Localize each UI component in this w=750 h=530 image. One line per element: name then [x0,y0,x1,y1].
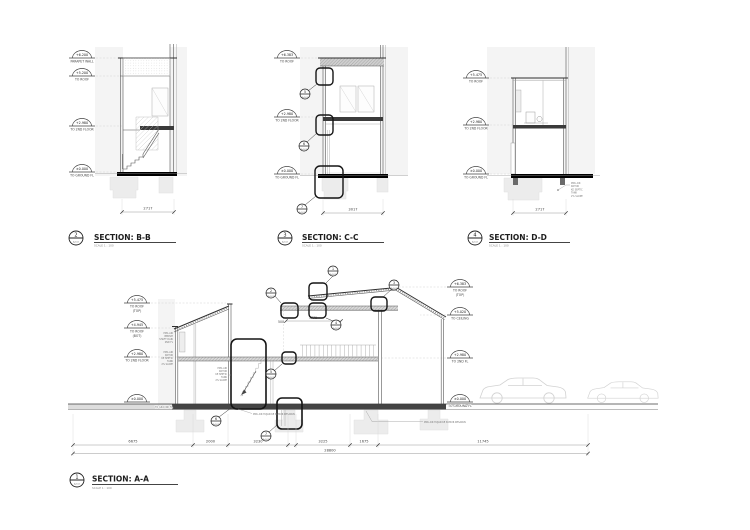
second-floor-slab [323,117,383,121]
callout-number: 1 [332,267,334,271]
elevation-marker: +6.383 TO ROOF [274,51,300,64]
callout-number: 7 [265,432,267,436]
title-sheet-ref: A-102 [472,241,479,244]
marker-label: TO 2ND FLOOR [274,119,299,123]
dimension-text: 2717 [143,207,152,211]
drawing-title-cc: 3 A-102 SECTION: C-C SCALE 1 : 100 [278,231,384,248]
scale-text: SCALE 1 : 100 [302,244,322,248]
title-number: 2 [74,232,77,238]
elevation-marker: +5.475 TO ROOF (TOP) [124,296,150,313]
scale-text: SCALE 1 : 100 [489,244,509,248]
callout-number: 7 [301,205,303,209]
marker-value: ±0.000 [470,169,482,173]
section-title: SECTION: D-D [489,233,547,242]
scale-text: SCALE 1 : 100 [92,486,112,490]
dimension-text: 2000 [206,440,216,444]
section-title: SECTION: B-B [94,233,151,242]
note-line: 2% SLOPE [161,363,173,366]
title-sheet-ref: A-102 [282,241,289,244]
marker-value: +2.980 [131,352,143,356]
title-bubble: 4 A-102 [468,231,482,245]
callout-number: 6 [303,142,305,146]
marker-label: TO GROUND FL [69,174,94,178]
title-sheet-ref: A-102 [74,483,81,486]
callout-ref: A-501 [263,438,270,441]
callout-ref: A-501 [330,273,337,276]
section-cc: 5 A-501 6 A-501 7 A-501 +6.383 TO ROOF +… [274,45,408,248]
dimension: 2717 [120,199,175,215]
title-bubble: 2 A-102 [69,231,83,245]
callout-ref: A-501 [213,423,220,426]
detail-callout-bubble: 5 A-501 [300,89,310,99]
drawing-title-dd: 4 A-102 SECTION: D-D SCALE 1 : 100 [468,231,570,248]
callout-ref: A-501 [268,376,275,379]
elevation-marker: +5.020 TO CEILING [447,308,473,321]
callout-ref: A-501 [302,96,309,99]
marker-label: TO CEILING [450,317,469,321]
callout-number: 5 [270,370,272,374]
dimension-text: 3017 [348,208,357,212]
detail-callout-bubble: 7 A-501 [297,204,307,214]
section-aa: 500 1770 1 A-501 2 A-501 [68,266,658,490]
dimension-text: 2717 [535,208,544,212]
elevation-marker: ±0.000 TO GROUND FL [463,167,489,180]
dimension-text: 3225 [318,440,327,444]
elevation-marker: +2.980 TO 2ND FLOOR [124,350,150,363]
note-line: 2ND FL [165,341,174,344]
callout-number: 2 [270,289,272,293]
marker-value: ±0.000 [454,397,466,401]
marker-value: +2.980 [454,353,466,357]
callout-number: 5 [304,90,306,94]
dimension-text: 1675 [359,440,368,444]
callout-ref: A-501 [301,148,308,151]
dimension-row: 6675 2000 3230 3225 1675 11745 28800 [71,414,589,456]
marker-value: ±0.000 [76,167,88,171]
marker-value: ±0.000 [281,169,293,173]
callout-number: 6 [215,417,217,421]
elevation-marker: +4.945 TO ROOF (BOT) [124,321,150,338]
marker-label: TO 2ND FL [451,360,469,364]
title-bubble: 1 A-102 [70,473,84,487]
callout-ref: A-501 [268,295,275,298]
marker-label: TO GROUND FL [274,176,299,180]
note-line: PIPA AIR HUJAN KE SUMUR RESAPAN [253,413,295,416]
marker-label: PARAPET WALL [70,60,93,64]
marker-label: TO GROUND FL [447,404,472,408]
roof-hatch [123,58,170,76]
marker-label: TO ROOF [279,60,294,64]
callout-ref: A-501 [333,327,340,330]
detail-callout-bubble: 1 A-501 [328,266,338,276]
building-left [172,304,233,404]
marker-value: +5.200 [76,71,88,75]
detail-callout-bubble: 3 A-501 [389,280,399,290]
section-bb: +6.200 PARAPET WALL +5.200 TO ROOF +2.98… [69,44,187,248]
note-line: 2% SLOPE [215,379,227,382]
marker-label: (TOP) [133,309,142,313]
dimension: 2717 [511,199,567,216]
note-line: PIPA AIR HUJAN KE SUMUR RESAPAN [424,421,466,424]
detail-callout-bubble: 6 A-501 [299,141,309,151]
elevation-marker: +2.980 TO 2ND FLOOR [274,110,300,123]
marker-label: TO ROOF [468,80,483,84]
dimension: 3017 [321,199,384,216]
elevation-marker: ±0.000 TO GROUND FL [274,167,300,180]
title-number: 1 [75,474,78,480]
title-number: 4 [473,232,476,238]
section-title: SECTION: C-C [302,233,359,242]
marker-value: +2.980 [281,112,293,116]
dimension-total-text: 28800 [324,448,336,452]
marker-label: TO 2ND FLOOR [69,128,94,132]
elevation-marker: +6.200 PARAPET WALL [69,51,95,64]
stair-detail-box [231,339,266,409]
section-title: SECTION: A-A [92,475,149,484]
marker-value: +6.383 [454,282,466,286]
elevation-marker: ±0.000 TO GROUND FL [447,395,473,409]
marker-label: TO 2ND FLOOR [463,127,488,131]
detail-callout-bubble: 2 A-501 [266,288,276,298]
elevation-marker: +5.475 TO ROOF [463,71,489,84]
ground-line [511,174,593,178]
callout-ref: A-501 [299,211,306,214]
sections-drawing: +6.200 PARAPET WALL +5.200 TO ROOF +2.98… [0,0,750,530]
car-silhouette [480,378,566,403]
note-line: 2% SLOPE [571,195,583,198]
annotation-note: PIPA AIR KOTOR KE SEPTIC TANK 2% SLOPE [161,351,173,366]
marker-value: +5.020 [454,310,466,314]
marker-label: TO ROOF [74,78,89,82]
elevation-marker: ±0.000 TO GROUND FL [69,165,95,178]
dimension-text: 11745 [477,440,488,444]
marker-label: TO GROUND FL [463,176,488,180]
elevation-marker: +2.980 TO 2ND FLOOR [69,119,95,132]
marker-value: +6.200 [76,53,88,57]
elevation-marker: ±0.000 [124,395,150,403]
title-sheet-ref: A-102 [73,241,80,244]
drawing-sheet: +6.200 PARAPET WALL +5.200 TO ROOF +2.98… [0,0,750,530]
ground-line [318,174,388,178]
elevation-marker: +5.200 TO ROOF [69,69,95,82]
marker-value: +2.980 [470,120,482,124]
dimension-text: 6675 [128,440,137,444]
title-number: 3 [283,232,286,238]
elevation-marker: +6.383 TO ROOF (TOP) [447,280,473,297]
marker-value: ±0.000 [131,397,143,401]
marker-label: TO 2ND FLOOR [124,359,149,363]
dimension-text: 500 [278,320,284,324]
marker-value: +6.383 [281,53,293,57]
second-floor-slab [513,125,566,129]
elevation-marker: +2.980 TO 2ND FLOOR [463,118,489,131]
sloped-roof [308,280,446,320]
marker-value: +5.475 [131,298,143,302]
callout-number: 4 [335,321,337,325]
title-bubble: 3 A-102 [278,231,292,245]
elevation-marker: +2.980 TO 2ND FL [447,351,473,364]
roof-band [318,58,386,66]
detail-callout-bubble: 5 A-501 [266,369,276,379]
detail-callout-bubble: 6 A-501 [211,416,221,426]
marker-value: +5.475 [470,73,482,77]
drawing-title-aa: 1 A-102 SECTION: A-A SCALE 1 : 100 [70,473,178,490]
car-silhouette [588,382,659,403]
callout-ref: A-501 [391,287,398,290]
marker-value: +4.945 [131,323,143,327]
marker-label: (BOT) [133,334,142,338]
callout-number: 3 [393,281,395,285]
marker-label: (TOP) [456,293,465,297]
drawing-title-bb: 2 A-102 SECTION: B-B SCALE 1 : 100 [69,231,176,248]
second-floor-slab [178,357,378,361]
section-dd: PIPA AIR KOTOR KE SEPTIC TANK 2% SLOPE +… [463,47,600,248]
scale-text: SCALE 1 : 100 [94,244,114,248]
marker-value: +2.980 [76,121,88,125]
ground-line [117,172,177,176]
ground-label: TO GROUND FL [155,406,173,409]
dimension-text: 3230 [253,440,263,444]
detail-callout-bubble: 4 A-501 [331,320,341,330]
